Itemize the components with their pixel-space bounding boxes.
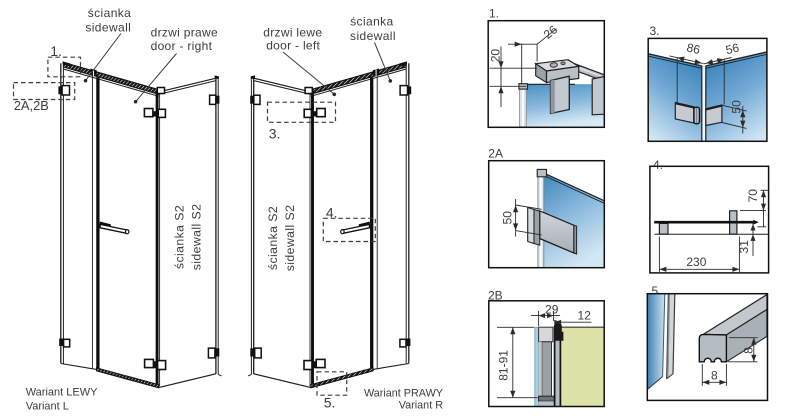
svg-text:29: 29: [545, 303, 559, 317]
svg-text:12: 12: [578, 309, 592, 323]
svg-text:31: 31: [737, 240, 751, 254]
svg-text:5.: 5.: [324, 395, 336, 411]
svg-text:ścianka S2: ścianka S2: [266, 206, 280, 270]
svg-text:ścianka: ścianka: [350, 15, 394, 29]
svg-text:Wariant LEWY: Wariant LEWY: [26, 386, 98, 398]
svg-text:81-91: 81-91: [496, 350, 510, 381]
svg-text:Variant L: Variant L: [26, 401, 69, 413]
svg-text:door - left: door - left: [266, 39, 320, 53]
svg-text:Variant R: Variant R: [399, 400, 443, 412]
svg-text:70: 70: [746, 189, 760, 203]
svg-text:door - right: door - right: [151, 39, 213, 53]
svg-text:230: 230: [686, 255, 706, 269]
svg-text:50: 50: [730, 100, 744, 114]
svg-text:drzwi lewe: drzwi lewe: [263, 25, 322, 39]
svg-text:1.: 1.: [50, 43, 62, 59]
svg-text:2A: 2A: [488, 147, 503, 161]
svg-text:8: 8: [711, 369, 718, 383]
svg-text:drzwi prawe: drzwi prawe: [151, 26, 218, 40]
svg-text:3.: 3.: [650, 24, 660, 38]
svg-text:20: 20: [489, 49, 503, 63]
svg-text:ścianka: ścianka: [88, 6, 132, 20]
svg-text:sidewall S2: sidewall S2: [283, 205, 297, 272]
svg-text:Wariant PRAWY: Wariant PRAWY: [364, 388, 443, 400]
svg-text:ścianka S2: ścianka S2: [172, 205, 186, 269]
svg-text:50: 50: [501, 211, 515, 225]
svg-text:sidewall: sidewall: [85, 20, 131, 34]
svg-text:8: 8: [741, 347, 755, 354]
svg-text:3.: 3.: [269, 126, 281, 142]
svg-text:sidewall: sidewall: [350, 29, 396, 43]
svg-text:4.: 4.: [653, 158, 663, 172]
svg-text:2A,2B: 2A,2B: [14, 98, 49, 113]
svg-text:1.: 1.: [489, 7, 499, 21]
svg-text:sidewall S2: sidewall S2: [190, 204, 204, 271]
